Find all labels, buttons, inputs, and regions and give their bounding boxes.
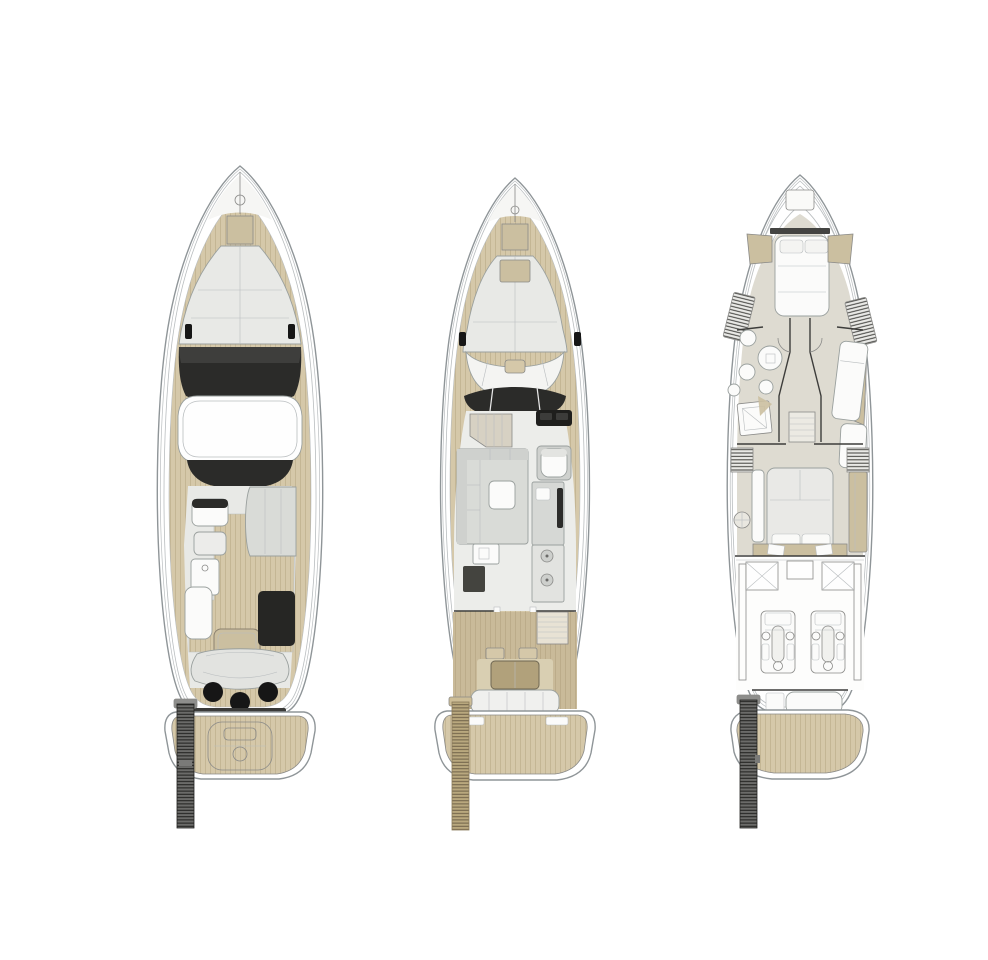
- passerelle-ladder: [449, 697, 472, 830]
- anchor-locker: [502, 224, 528, 250]
- cockpit-table: [477, 659, 553, 693]
- engine-starboard: [811, 611, 845, 673]
- cockpit-stairs: [537, 612, 568, 644]
- galley: [532, 482, 564, 602]
- deck-hatch-symbol: [734, 512, 750, 528]
- anchor-locker: [227, 216, 253, 244]
- bow-hatch: [786, 190, 814, 210]
- flybridge-bench: [185, 587, 212, 639]
- flybridge-deck-plan: [157, 166, 322, 828]
- deck-plans-svg: [0, 0, 988, 960]
- vent-box-left: [731, 448, 753, 472]
- fuel-tank-left: [746, 562, 778, 590]
- hardtop: [178, 396, 302, 462]
- engine-room: [735, 556, 865, 690]
- staircase: [789, 412, 815, 442]
- flybridge-windshield: [187, 460, 293, 486]
- aft-sunbed: [191, 649, 289, 690]
- vip-shelf-left: [747, 234, 772, 264]
- bow-pad: [500, 260, 530, 282]
- passerelle-ladder: [737, 695, 760, 828]
- vip-shelf-right: [828, 234, 853, 264]
- master-bench: [752, 470, 764, 542]
- yacht-deck-plans-figure: [0, 0, 988, 960]
- master-wardrobe: [849, 472, 867, 552]
- wet-bar-cabinet: [258, 591, 295, 646]
- engine-port: [761, 611, 795, 673]
- flybridge-sofa: [246, 487, 297, 556]
- master-aft-shelf: [753, 544, 847, 556]
- vent-box-right: [847, 448, 869, 472]
- passerelle-ladder: [174, 699, 197, 828]
- center-hatch: [787, 561, 813, 579]
- salon-table: [489, 481, 515, 509]
- fuel-tank-right: [822, 562, 854, 590]
